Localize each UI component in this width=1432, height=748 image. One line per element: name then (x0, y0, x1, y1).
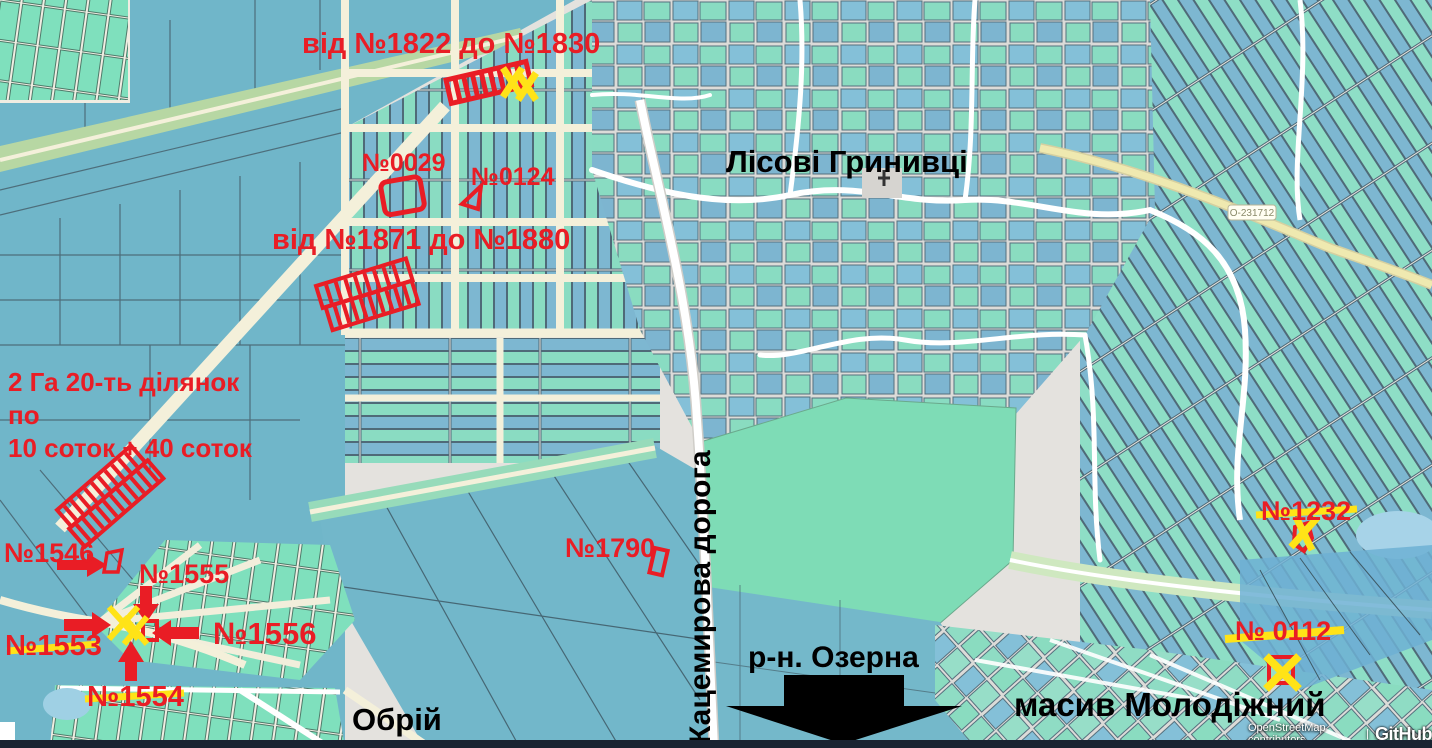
annotation-plot-0124: №0124 (471, 163, 554, 192)
place-label-village: Лісові Гринивці (726, 144, 968, 180)
annotation-plot-1790: №1790 (565, 533, 655, 564)
road-ref-badge: О-231712 (1228, 205, 1276, 220)
annotation-area-note: 2 Га 20-ть ділянок по 10 соток + 40 сото… (8, 366, 268, 465)
annotation-plot-1554: №1554 (87, 681, 184, 714)
annotation-plot-1556: №1556 (213, 616, 317, 652)
place-label-district: р-н. Озерна (748, 641, 919, 675)
annotation-plot-0029: №0029 (362, 149, 445, 178)
annotation-plot-1553: №1553 (5, 630, 102, 663)
attribution-separator: | (1366, 728, 1369, 740)
annotation-plot-1546: №1546 (4, 538, 94, 569)
road-label-vertical: Кацемирова дорога (684, 450, 718, 744)
place-label-massif: масив Молодіжний (1014, 686, 1326, 724)
road-ref-text: О-231712 (1230, 208, 1275, 219)
annotation-area-note-line1: 2 Га 20-ть ділянок по (8, 366, 268, 432)
annotation-plot-0112: № 0112 (1235, 616, 1331, 647)
annotation-plot-1555: №1555 (139, 559, 229, 590)
map-viewport[interactable]: О-231712 (0, 0, 1432, 748)
unloaded-tile-patch (0, 722, 15, 742)
annotation-range-1871-1880: від №1871 до №1880 (272, 224, 570, 257)
annotation-range-1822-1830: від №1822 до №1830 (302, 28, 600, 61)
place-label-neighborhood: Обрій (352, 702, 442, 738)
annotation-plot-1232: №1232 (1261, 496, 1351, 527)
annotation-area-note-line2: 10 соток + 40 соток (8, 432, 268, 465)
bottom-window-edge (0, 740, 1432, 748)
